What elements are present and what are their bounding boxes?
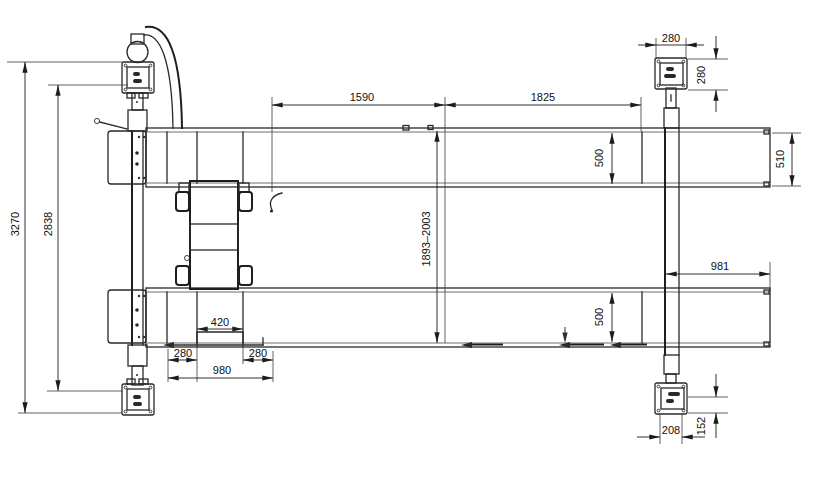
dim-runway-spacing-range: 1893–2003 [420, 131, 437, 343]
roller [239, 192, 252, 211]
dim-label-segment-right: 1825 [531, 91, 555, 103]
dimensions: 3270 2838 1590 1825 1893–2003 [7, 32, 801, 444]
dim-offset-left: 280 [168, 346, 197, 382]
dim-label-inner-length: 2838 [42, 212, 54, 236]
hydraulic-hose [146, 27, 182, 128]
dim-label-runway-width-top: 500 [593, 149, 605, 167]
dim-label-extension-width: 510 [774, 150, 786, 168]
dim-offset-right: 280 [243, 346, 273, 382]
jack-hose-hook [270, 193, 282, 210]
crossbeam-left [108, 93, 147, 385]
dim-label-base-span: 980 [213, 364, 231, 376]
dim-anchor-offset: 152 [688, 374, 728, 438]
post-top-right [655, 58, 687, 89]
roller [176, 266, 189, 285]
dim-extension-width: 510 [772, 133, 801, 186]
dim-label-offset-right: 280 [249, 347, 267, 359]
latch-hook-left [94, 118, 127, 129]
dim-segment-right: 1825 [445, 91, 641, 131]
jack-guide [197, 332, 243, 346]
dim-label-offset-left: 280 [174, 347, 192, 359]
technical-drawing: 3270 2838 1590 1825 1893–2003 [0, 0, 829, 483]
dim-label-total-length: 3270 [9, 212, 21, 236]
dim-jack-guide-width: 420 [197, 316, 243, 329]
dim-baseplate-width: 280 [638, 32, 704, 58]
dim-label-rear-overhang: 981 [711, 260, 729, 272]
dim-label-anchor-offset: 152 [695, 417, 707, 435]
dim-label-runway-width-bottom: 500 [593, 308, 605, 326]
roller [239, 266, 252, 285]
dim-label-baseplate-width: 280 [662, 32, 680, 44]
dim-label-baseplate-depth: 280 [695, 66, 707, 84]
dim-runway-width-bottom: 500 [593, 293, 612, 342]
dim-baseplate-depth: 280 [688, 36, 728, 112]
runway-bottom [146, 288, 770, 347]
roller [176, 192, 189, 211]
dim-label-segment-left: 1590 [350, 91, 374, 103]
dim-label-spacing-range: 1893–2003 [420, 211, 432, 266]
dim-total-length: 3270 [7, 62, 122, 413]
dim-rear-overhang: 981 [666, 260, 770, 291]
ramp-marks [163, 327, 646, 348]
dim-label-jack-guide-width: 420 [211, 316, 229, 328]
dim-runway-width-top: 500 [593, 133, 612, 184]
dim-base-span: 980 [168, 364, 273, 378]
post-bottom-right [655, 383, 687, 414]
post-top-left [122, 27, 182, 128]
post-bottom-left [122, 379, 154, 415]
motor [127, 42, 148, 63]
dim-label-anchor-width: 208 [662, 424, 680, 436]
runway-top [146, 126, 770, 188]
drawing-canvas: 3270 2838 1590 1825 1893–2003 [0, 0, 829, 483]
